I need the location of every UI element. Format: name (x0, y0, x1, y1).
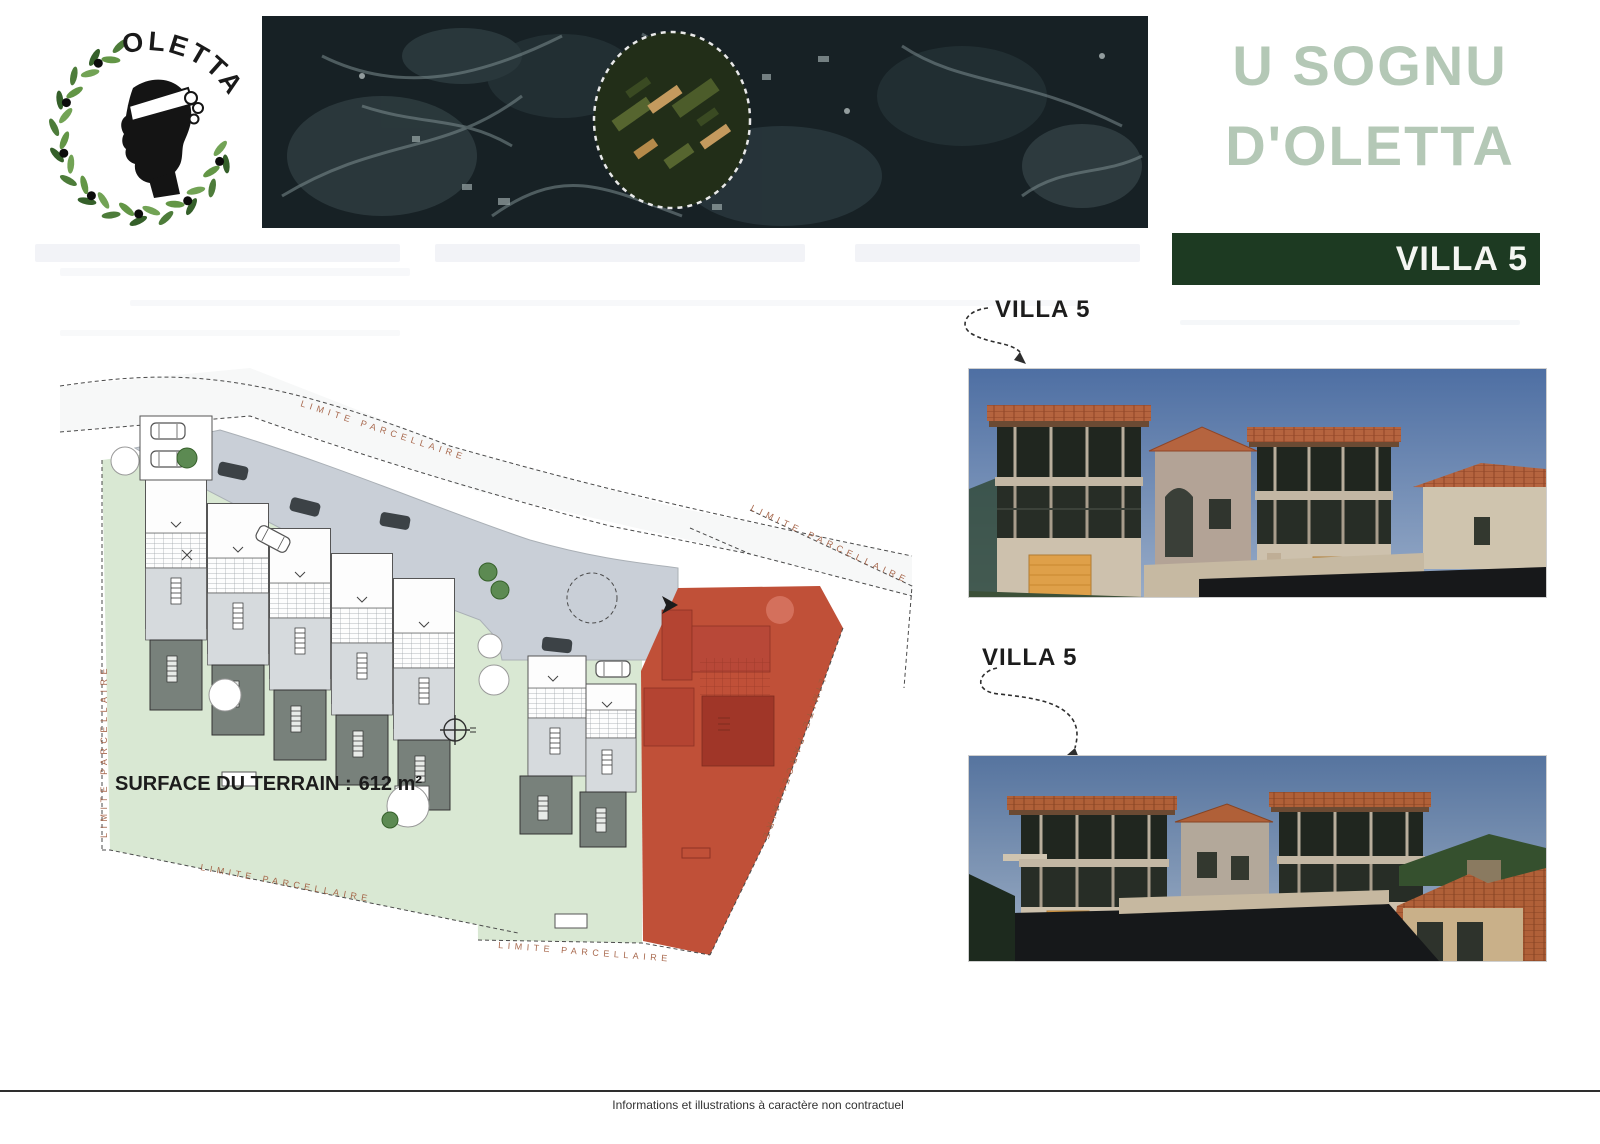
villa5-parcel-highlight (641, 586, 843, 955)
rendering-perspective-view (968, 755, 1547, 962)
villa-banner: VILLA 5 (1172, 233, 1540, 285)
brochure-page: OLETTA (0, 0, 1600, 1144)
callout-arrow-1 (948, 300, 1043, 370)
aerial-photo (262, 16, 1148, 228)
foreground-shadow (969, 904, 1439, 961)
faded-print-row (35, 244, 400, 262)
faded-print-row (60, 268, 410, 276)
location-highlight-ellipse (594, 32, 750, 208)
villa-left (987, 405, 1151, 597)
site-plan: LIMITE PARCELLAIRE LIMITE PARCELLAIRE LI… (50, 358, 920, 988)
faded-print-row (435, 244, 805, 262)
project-title-line1: U SOGNU (1180, 26, 1560, 106)
faded-print-row (855, 244, 1140, 262)
faded-print-row (130, 300, 1090, 306)
project-title-line2: D'OLETTA (1180, 106, 1560, 186)
callout-arrow-2 (965, 658, 1095, 758)
footer-divider (0, 1090, 1600, 1092)
villa-banner-label: VILLA 5 (1396, 240, 1528, 279)
moor-head-icon (121, 80, 203, 198)
faded-print-row (60, 330, 400, 336)
footer-disclaimer: Informations et illustrations à caractèr… (0, 1098, 1516, 1112)
project-title: U SOGNU D'OLETTA (1180, 26, 1560, 186)
tree-on-parcel (766, 596, 794, 624)
rendering-front-view (968, 368, 1547, 598)
oletta-commune-logo: OLETTA (36, 8, 256, 236)
surface-caption: SURFACE DU TERRAIN :612 m² (115, 773, 422, 795)
faded-print-row (1180, 320, 1520, 325)
svg-text:LIMITE PARCELLAIRE: LIMITE PARCELLAIRE (99, 664, 109, 838)
